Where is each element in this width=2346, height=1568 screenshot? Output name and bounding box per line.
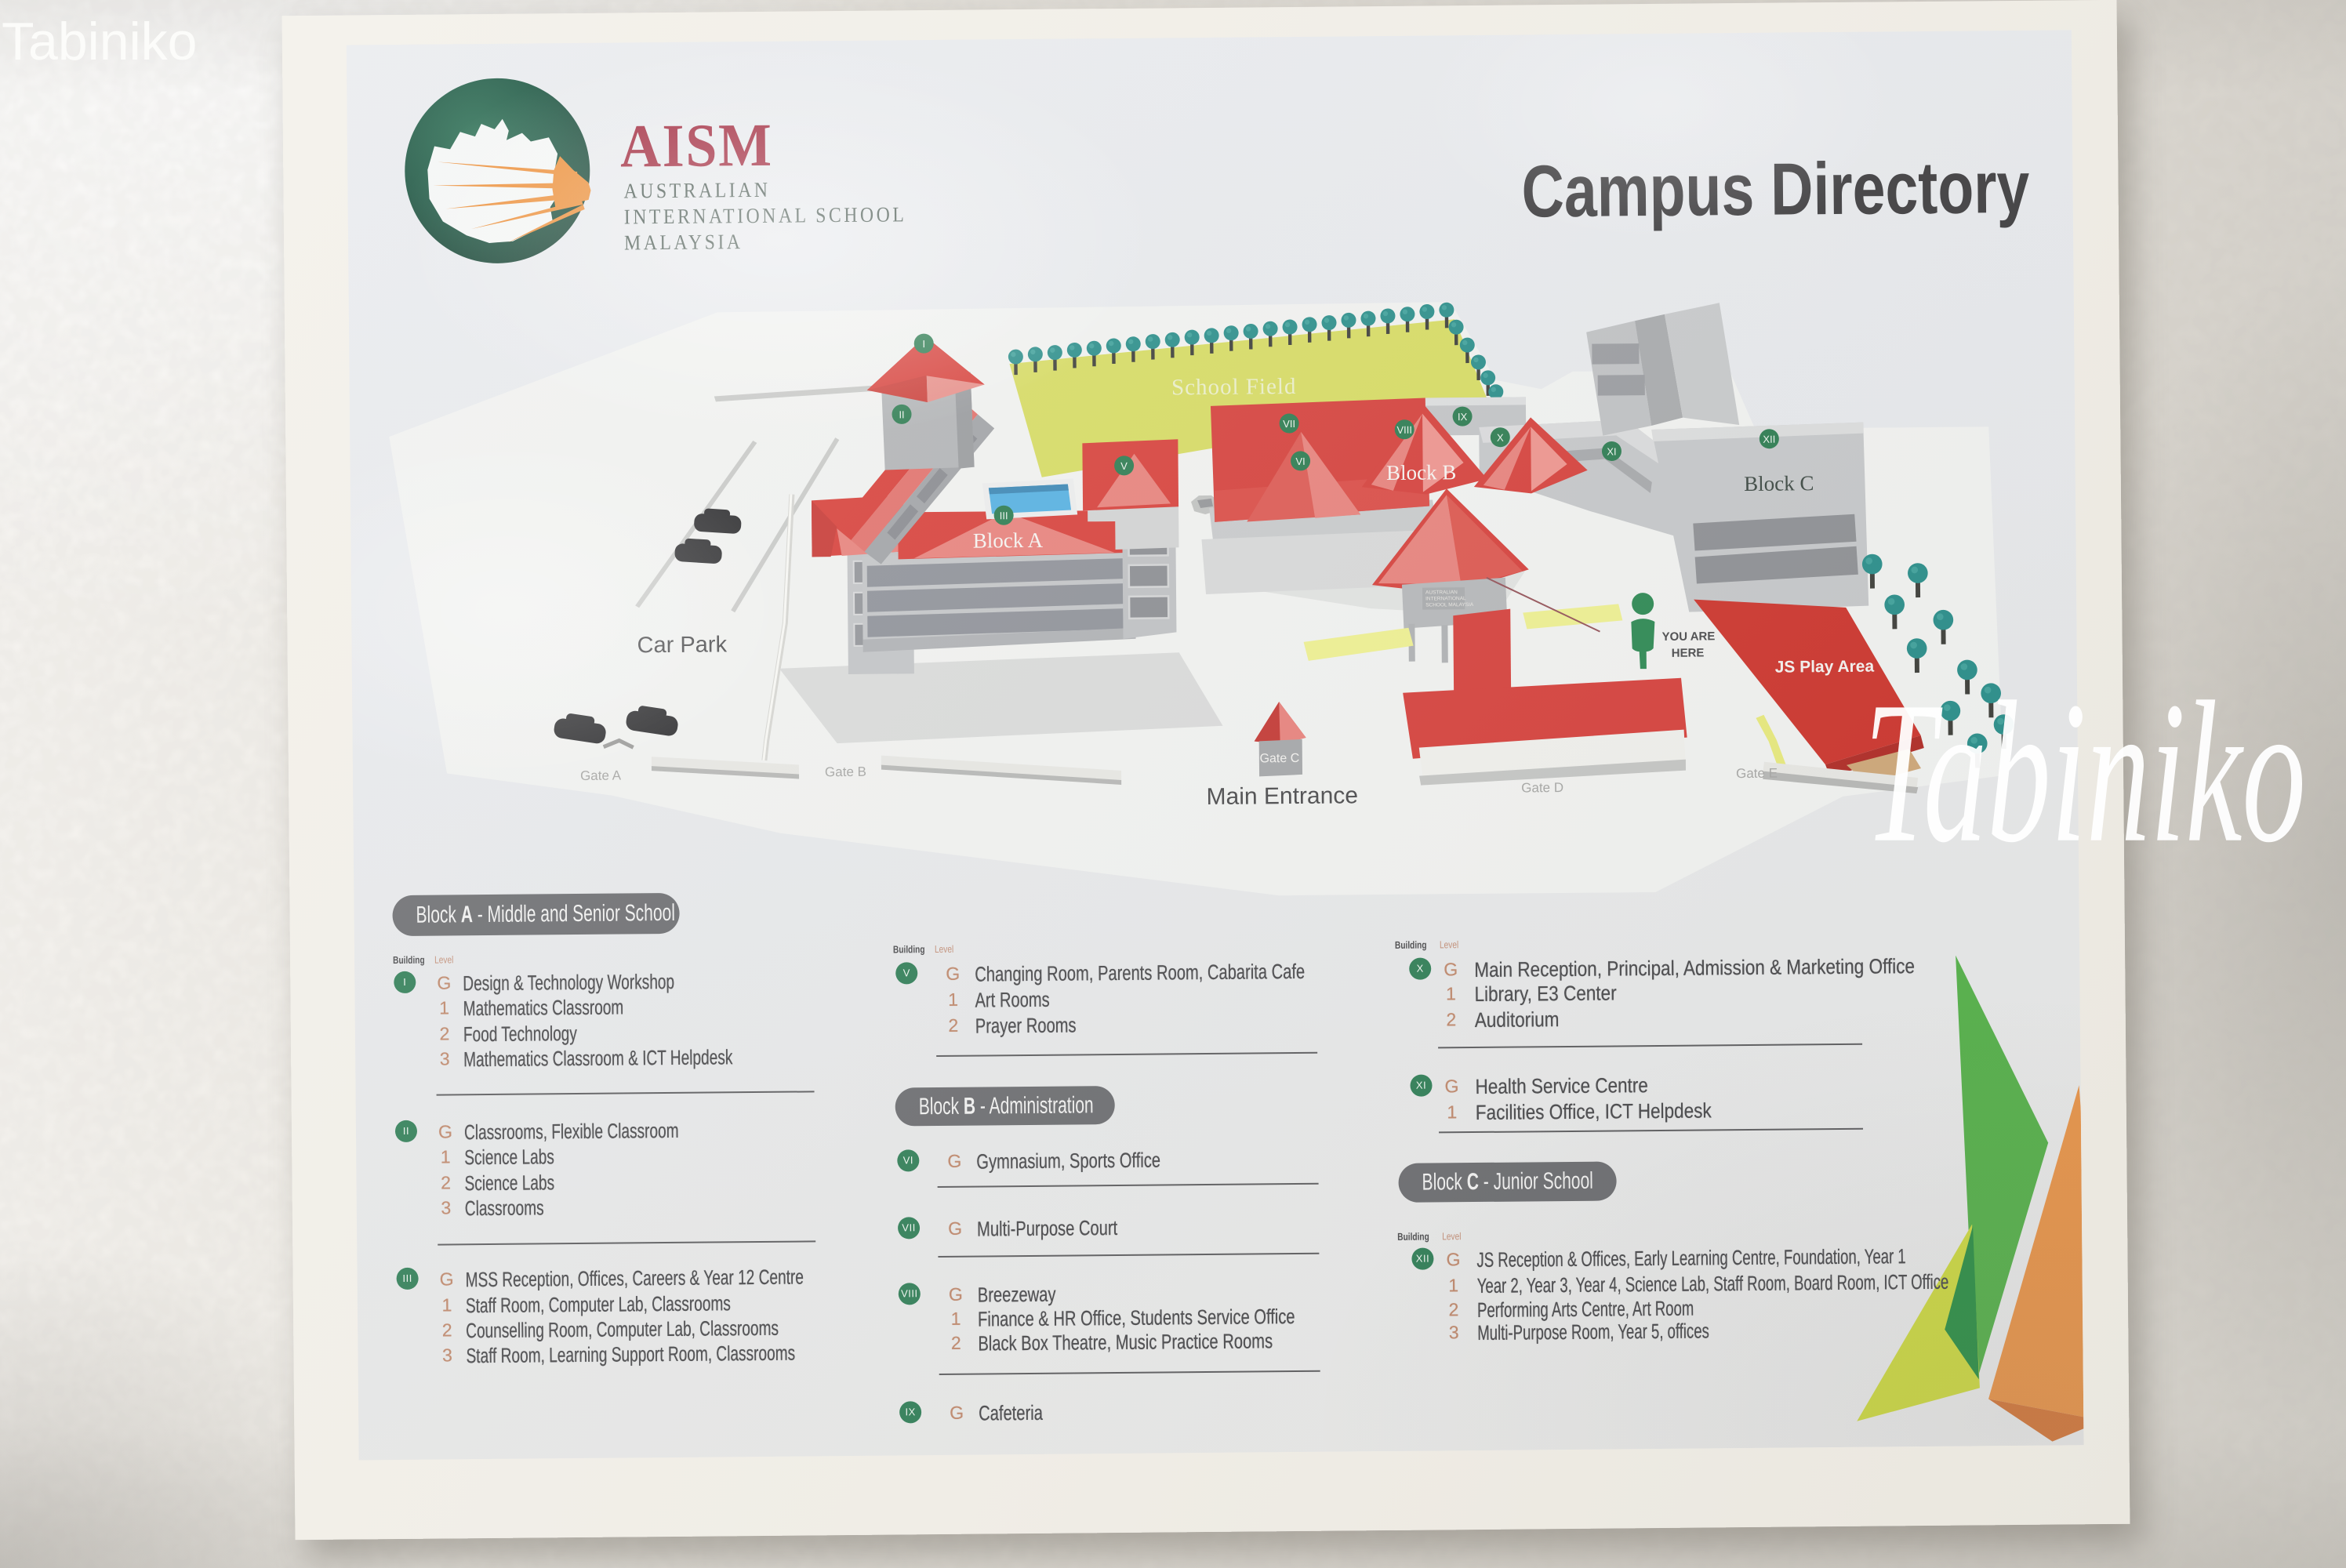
- svg-text:Block B: Block B: [1386, 460, 1457, 485]
- svg-text:INTERNATIONAL: INTERNATIONAL: [1425, 596, 1466, 601]
- svg-text:VI: VI: [1295, 456, 1305, 467]
- svg-text:VIII: VIII: [1396, 424, 1412, 436]
- svg-text:Gate A: Gate A: [580, 768, 622, 783]
- svg-text:V: V: [1120, 460, 1128, 472]
- svg-text:Tabiniko: Tabiniko: [1864, 666, 2305, 884]
- svg-text:Block C: Block C: [1744, 471, 1814, 495]
- svg-text:Gate E: Gate E: [1736, 766, 1778, 781]
- svg-text:YOU ARE: YOU ARE: [1661, 630, 1715, 644]
- svg-text:I: I: [922, 338, 925, 350]
- svg-text:Gate B: Gate B: [825, 764, 866, 779]
- svg-text:VII: VII: [1283, 418, 1295, 430]
- svg-text:III: III: [1000, 510, 1008, 521]
- svg-text:HERE: HERE: [1672, 646, 1705, 659]
- svg-text:Car Park: Car Park: [637, 632, 727, 658]
- svg-text:Block A: Block A: [973, 528, 1044, 553]
- svg-text:II: II: [899, 408, 904, 420]
- svg-text:X: X: [1497, 432, 1504, 444]
- svg-text:IX: IX: [1458, 411, 1468, 423]
- svg-text:School Field: School Field: [1171, 374, 1297, 400]
- svg-text:SCHOOL MALAYSIA: SCHOOL MALAYSIA: [1425, 602, 1474, 608]
- svg-text:XI: XI: [1607, 445, 1616, 457]
- svg-text:XII: XII: [1763, 434, 1775, 445]
- svg-text:AUSTRALIAN: AUSTRALIAN: [1425, 590, 1458, 595]
- svg-text:Main Entrance: Main Entrance: [1206, 782, 1358, 810]
- svg-text:Gate C: Gate C: [1259, 752, 1299, 765]
- svg-text:Gate D: Gate D: [1521, 780, 1563, 795]
